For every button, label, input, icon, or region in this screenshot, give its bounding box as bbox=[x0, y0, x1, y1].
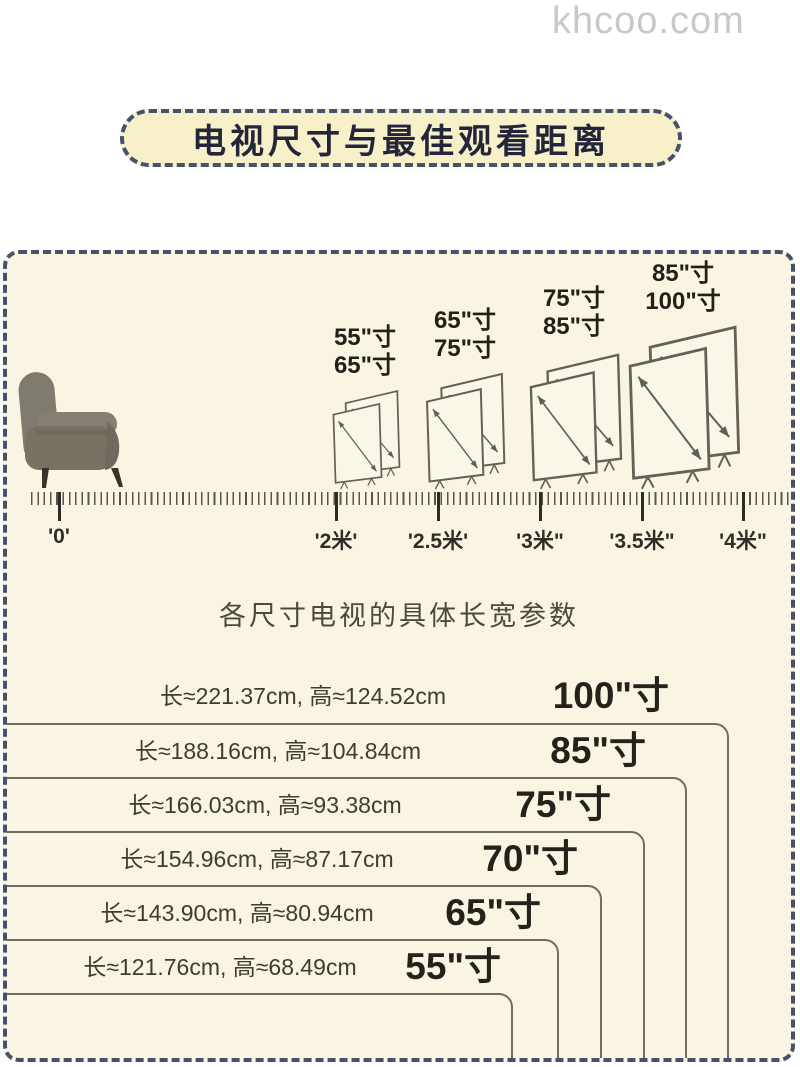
table-row: 长≈188.16cm, 高≈104.84cm 85"寸 bbox=[7, 729, 791, 773]
tv-size-line: 85"寸 bbox=[525, 313, 623, 341]
table-title: 各尺寸电视的具体长宽参数 bbox=[7, 594, 791, 633]
tv-size-label-group2: 65"寸 75"寸 bbox=[419, 307, 511, 363]
title-banner: 电视尺寸与最佳观看距离 bbox=[120, 109, 682, 167]
tv-size-line: 75"寸 bbox=[525, 285, 623, 313]
tv-size-line: 65"寸 bbox=[319, 352, 411, 380]
table-row: 长≈166.03cm, 高≈93.38cm 75"寸 bbox=[7, 783, 791, 827]
tv-dimensions: 长≈188.16cm, 高≈104.84cm bbox=[135, 729, 421, 773]
tv-illustration-55-65 bbox=[329, 386, 401, 490]
tv-dimensions: 长≈221.37cm, 高≈124.52cm bbox=[160, 674, 446, 718]
tv-size: 100"寸 bbox=[553, 674, 669, 718]
tv-size: 70"寸 bbox=[482, 837, 578, 881]
size-box-inner bbox=[3, 993, 513, 1062]
tv-size: 55"寸 bbox=[405, 945, 501, 989]
tv-size-label-group4: 85"寸 100"寸 bbox=[627, 260, 739, 316]
page-title: 电视尺寸与最佳观看距离 bbox=[192, 114, 610, 163]
tv-illustration-75-85 bbox=[525, 348, 623, 490]
ruler-tick-0m bbox=[58, 492, 61, 521]
ruler-tick-4m bbox=[742, 492, 745, 521]
table-row: 长≈121.76cm, 高≈68.49cm 55"寸 bbox=[7, 945, 791, 989]
sofa-illustration bbox=[15, 370, 133, 490]
table-row: 长≈143.90cm, 高≈80.94cm 65"寸 bbox=[7, 891, 791, 935]
tv-size-label-group3: 75"寸 85"寸 bbox=[525, 285, 623, 341]
tv-size-line: 55"寸 bbox=[319, 324, 411, 352]
ruler-minor-ticks bbox=[31, 492, 791, 505]
ruler-tick-2m bbox=[335, 492, 338, 521]
ruler-label-4m: '4米" bbox=[719, 525, 767, 555]
tv-illustration-65-75 bbox=[422, 368, 506, 490]
tv-size: 75"寸 bbox=[515, 783, 611, 827]
ruler-tick-2-5m bbox=[437, 492, 440, 521]
watermark-text: khcoo.com bbox=[552, 0, 745, 43]
table-row: 长≈221.37cm, 高≈124.52cm 100"寸 bbox=[7, 674, 791, 718]
tv-size-line: 85"寸 bbox=[627, 260, 739, 288]
ruler-label-0m: '0' bbox=[48, 525, 70, 549]
tv-size-label-group1: 55"寸 65"寸 bbox=[319, 324, 411, 380]
tv-size-line: 75"寸 bbox=[419, 335, 511, 363]
tv-dimensions: 长≈166.03cm, 高≈93.38cm bbox=[128, 783, 401, 827]
tv-size-line: 65"寸 bbox=[419, 307, 511, 335]
tv-dimensions: 长≈121.76cm, 高≈68.49cm bbox=[83, 945, 356, 989]
viewing-distance-panel: 55"寸 65"寸 65"寸 75"寸 75"寸 85"寸 85"寸 100"寸… bbox=[3, 250, 795, 1062]
tv-size-line: 100"寸 bbox=[627, 288, 739, 316]
table-row: 长≈154.96cm, 高≈87.17cm 70"寸 bbox=[7, 837, 791, 881]
ruler-label-2-5m: '2.5米' bbox=[408, 525, 468, 555]
ruler-label-3-5m: '3.5米" bbox=[609, 525, 674, 555]
ruler-tick-3-5m bbox=[641, 492, 644, 521]
ruler-label-3m: '3米" bbox=[516, 525, 564, 555]
tv-dimensions: 长≈154.96cm, 高≈87.17cm bbox=[120, 837, 393, 881]
tv-dimensions: 长≈143.90cm, 高≈80.94cm bbox=[100, 891, 373, 935]
tv-size: 85"寸 bbox=[550, 729, 646, 773]
tv-illustration-85-100 bbox=[623, 319, 741, 490]
tv-size: 65"寸 bbox=[445, 891, 541, 935]
ruler-label-2m: '2米' bbox=[315, 525, 358, 555]
ruler-tick-3m bbox=[539, 492, 542, 521]
